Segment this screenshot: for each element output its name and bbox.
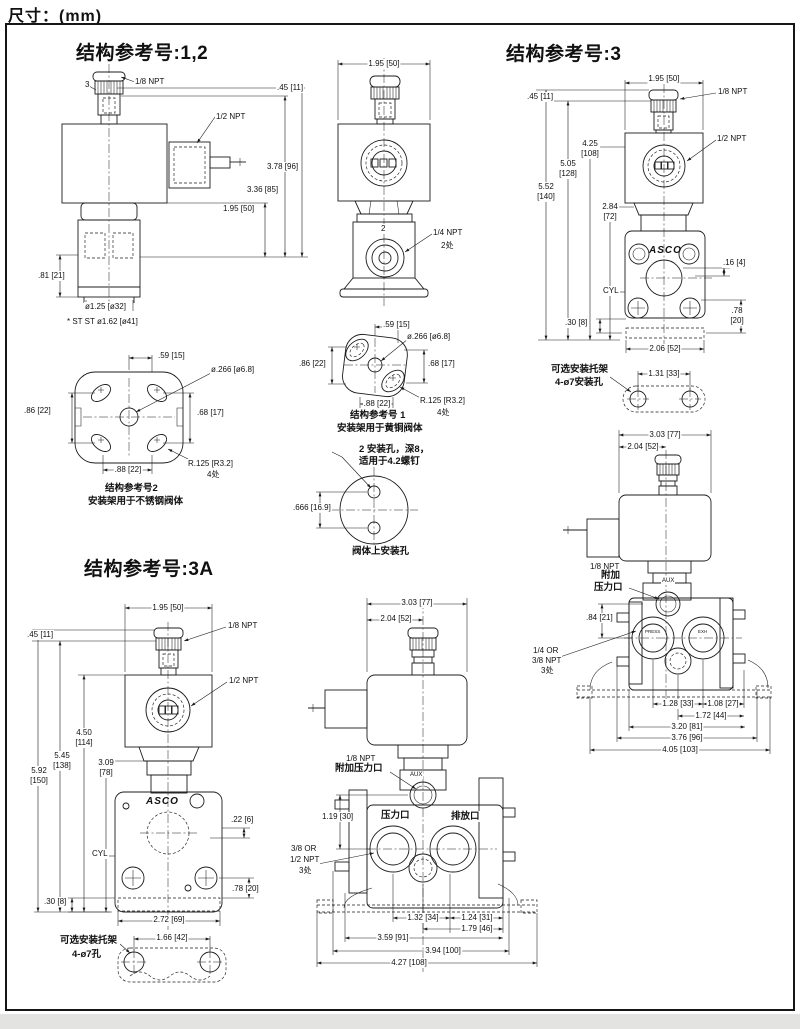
r3s-dim-320: 3.20 [81]	[670, 722, 703, 732]
npt-12-callout: 1/2 NPT	[215, 112, 246, 122]
r3f-npt-12: 1/2 NPT	[716, 134, 747, 144]
br1-dim-059: .59 [15]	[382, 320, 411, 330]
dim-195-label: 1.95 [50]	[222, 204, 255, 214]
dim-045-label: .45 [11]	[276, 83, 304, 93]
r3s-dim-376: 3.76 [96]	[670, 733, 703, 743]
r3f-dim-284: 2.84 [72]	[601, 202, 619, 222]
r3f-dim-195: 1.95 [50]	[647, 74, 680, 84]
br2-caption-1: 结构参考号2	[104, 483, 159, 494]
r3af-dim-195: 1.95 [50]	[151, 603, 184, 613]
holes-note-1: 2 安装孔，深8，	[358, 444, 430, 455]
ref12-front-view-drawing	[338, 58, 432, 306]
br1-dim-dia266: ø.266 [ø6.8]	[406, 332, 451, 342]
r3f-dim-425: 4.25 [108]	[580, 139, 600, 159]
npt-14-callout: 1/4 NPT	[432, 228, 463, 238]
r3af-dim-545: 5.45 [138]	[52, 751, 72, 771]
br2-places-4: 4处	[206, 470, 220, 480]
r3as-dim-132: 1.32 [34]	[406, 913, 439, 923]
r3f-dim-045: .45 [11]	[526, 92, 554, 102]
r3af-npt-18: 1/8 NPT	[227, 621, 258, 631]
br2-caption-2: 安装架用于不锈钢阀体	[87, 496, 184, 507]
r3as-dim-303: 3.03 [77]	[400, 598, 433, 608]
r3s-dim-405: 4.05 [103]	[661, 745, 699, 755]
r3f-dim-016: .16 [4]	[722, 258, 746, 268]
ref3a-bracket-drawing	[118, 936, 226, 982]
r3af-npt-12: 1/2 NPT	[228, 676, 259, 686]
r3af-dim-022: .22 [6]	[230, 815, 254, 825]
r3s-npt-line1: 1/4 OR	[532, 646, 559, 656]
dim-dia125-label: ø1.25 [ø32]	[84, 302, 127, 312]
r3f-dim-552: 5.52 [140]	[536, 182, 556, 202]
r3-bracket-note-1: 可选安装托架	[550, 364, 609, 375]
dim-195-front-label: 1.95 [50]	[367, 59, 400, 69]
r3a-bracket-note-1: 可选安装托架	[59, 935, 118, 946]
r3af-dim-030: .30 [8]	[43, 897, 67, 907]
br2-dim-r125: R.125 [R3.2]	[187, 459, 234, 469]
r3f-dim-206: 2.06 [52]	[648, 344, 681, 354]
br2-dim-dia266: ø.266 [ø6.8]	[210, 365, 255, 375]
callout-2: 2	[380, 224, 386, 234]
br1-dim-068: .68 [17]	[427, 359, 456, 369]
section-heading-ref3: 结构参考号:3	[506, 39, 621, 66]
bracket-ref2-drawing	[68, 355, 213, 474]
dim-378-label: 3.78 [96]	[266, 162, 299, 172]
section-heading-ref3a: 结构参考号:3A	[84, 554, 214, 581]
br2-dim-088: .88 [22]	[114, 465, 143, 475]
npt-18-callout: 1/8 NPT	[134, 77, 165, 87]
drawing-sheet: 尺寸：(mm)	[0, 0, 800, 1029]
r3af-dim-272: 2.72 [69]	[152, 915, 185, 925]
r3as-dim-119: 1.19 [30]	[321, 812, 354, 822]
r3s-aux-label: AUX	[661, 578, 675, 585]
r3as-dim-179: 1.79 [46]	[460, 924, 493, 934]
r3f-dim-078: .78 [20]	[729, 306, 744, 326]
br2-dim-086: .86 [22]	[23, 406, 52, 416]
holes-dim-666: .666 [16.9]	[292, 503, 332, 513]
r3s-dim-204: 2.04 [52]	[626, 442, 659, 452]
r3af-cyl: CYL	[91, 849, 109, 859]
r3f-dim-505: 5.05 [128]	[558, 159, 578, 179]
r3s-places-3: 3处	[540, 666, 554, 676]
footer-strip	[0, 1014, 800, 1029]
r3s-port-left-label: PRESS	[645, 629, 660, 634]
r3-bracket-note-2: 4-ø7安装孔	[554, 377, 604, 388]
r3f-cyl: CYL	[602, 286, 620, 296]
dim-081-label: .81 [21]	[37, 271, 66, 281]
br1-dim-086: .86 [22]	[298, 359, 327, 369]
br1-dim-r125: R.125 [R3.2]	[419, 396, 466, 406]
r3f-dim-030: .30 [8]	[564, 318, 588, 328]
r3s-npt-line2: 3/8 NPT	[531, 656, 562, 666]
r3-bracket-dim-131: 1.31 [33]	[647, 369, 680, 379]
r3as-dim-394: 3.94 [100]	[424, 946, 462, 956]
holes-note-2: 适用于4.2螺钉	[358, 456, 421, 467]
section-heading-ref12: 结构参考号:1,2	[76, 38, 208, 65]
r3s-note-yaliko: 压力口	[593, 582, 624, 593]
br1-caption-1: 结构参考号 1	[349, 410, 406, 421]
callout-3: 3	[84, 80, 90, 90]
r3s-dim-084: .84 [21]	[585, 613, 614, 623]
r3as-npt-line1: 3/8 OR	[290, 844, 317, 854]
r3af-dim-045: .45 [11]	[26, 630, 54, 640]
br1-places-4: 4处	[436, 408, 450, 418]
r3as-places-3: 3处	[298, 866, 312, 876]
r3af-dim-592: 5.92 [150]	[29, 766, 49, 786]
r3af-dim-450: 4.50 [114]	[74, 728, 93, 748]
r3s-port-right-label: EXH	[698, 629, 707, 634]
holes-caption: 阀体上安装孔	[351, 546, 410, 557]
asco-logo-ref3a: ASCO	[145, 796, 180, 808]
r3as-note-fujia: 附加压力口	[334, 763, 384, 774]
r3a-bracket-note-2: 4-ø7孔	[71, 949, 102, 960]
br1-caption-2: 安装架用于黄铜阀体	[336, 423, 424, 434]
r3af-dim-309: 3.09 [78]	[97, 758, 115, 778]
asco-logo-ref3: ASCO	[648, 245, 683, 257]
r3s-dim-128: 1.28 [33]	[661, 699, 694, 709]
r3s-note-fujia: 附加	[600, 570, 621, 581]
drawing-linework	[0, 0, 800, 1029]
br1-dim-088: .88 [22]	[363, 399, 392, 409]
br2-dim-059: .59 [15]	[157, 351, 186, 361]
r3af-dim-078: .78 [20]	[231, 884, 260, 894]
r3as-dim-204: 2.04 [52]	[379, 614, 412, 624]
r3s-dim-108: 1.08 [27]	[706, 699, 739, 709]
br2-dim-068: .68 [17]	[196, 408, 225, 418]
dim-336-label: 3.36 [85]	[246, 185, 279, 195]
r3as-aux-label: AUX	[409, 772, 423, 779]
places-2-label: 2处	[440, 241, 454, 251]
r3as-dim-427: 4.27 [108]	[390, 958, 428, 968]
r3s-dim-303: 3.03 [77]	[648, 430, 681, 440]
r3a-bracket-dim-166: 1.66 [42]	[155, 933, 188, 943]
r3as-npt-line2: 1/2 NPT	[289, 855, 320, 865]
r3f-npt-18: 1/8 NPT	[717, 87, 748, 97]
r3s-dim-172: 1.72 [44]	[694, 711, 727, 721]
r3as-port-exhaust: 排放口	[450, 811, 481, 822]
r3as-port-pressure: 压力口	[380, 810, 411, 821]
note-stst: * ST ST ø1.62 [ø41]	[66, 317, 139, 327]
r3as-dim-359: 3.59 [91]	[376, 933, 409, 943]
r3as-dim-124: 1.24 [31]	[460, 913, 493, 923]
ref3-front-view-drawing	[536, 80, 746, 356]
